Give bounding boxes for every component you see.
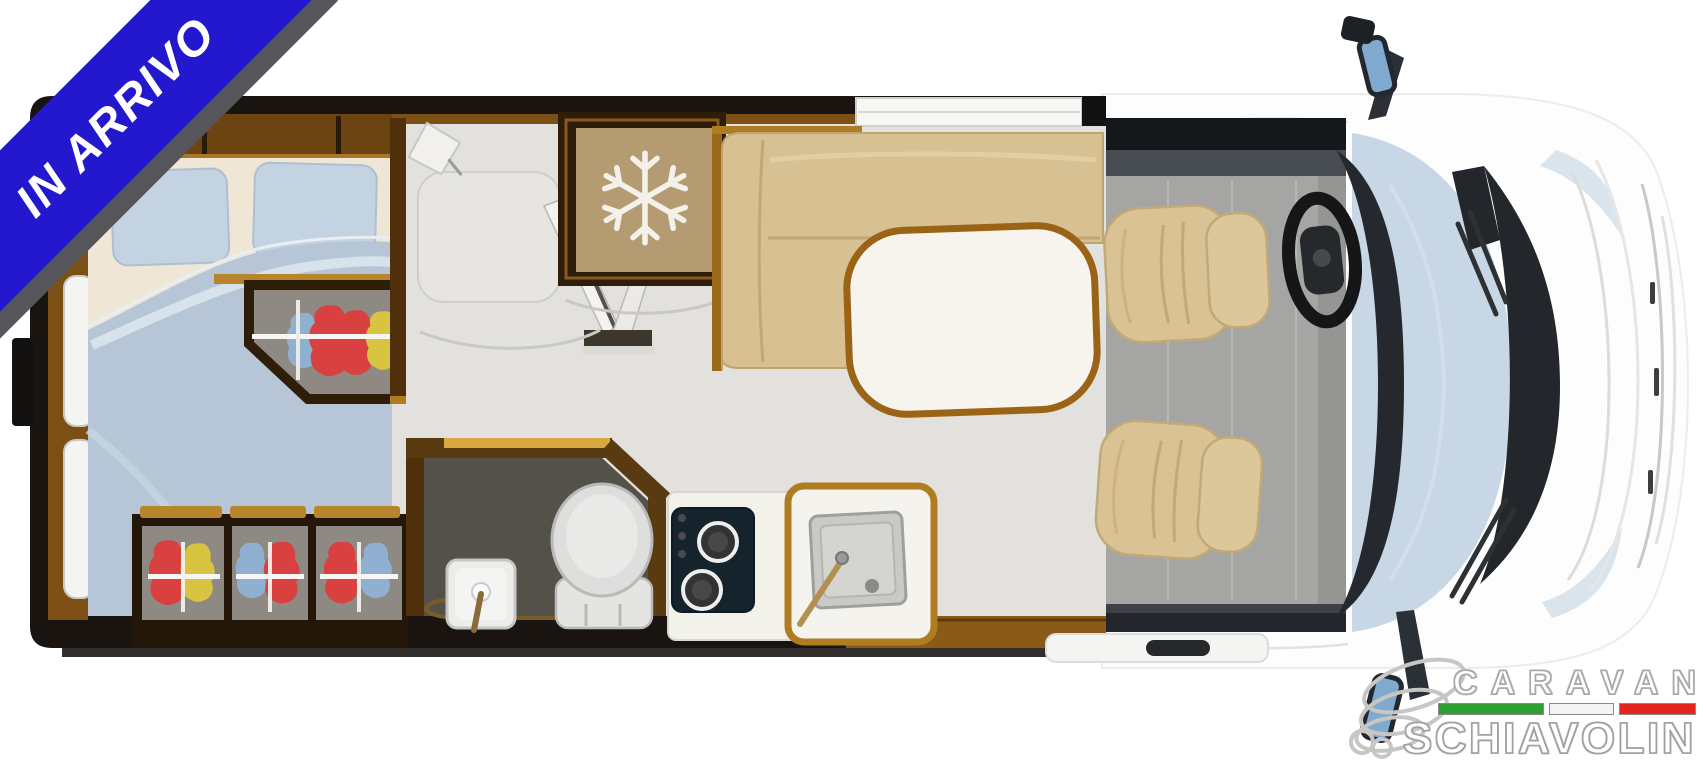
passenger-seat — [1094, 419, 1265, 564]
kitchen — [668, 486, 934, 642]
step-handle — [1146, 640, 1210, 656]
toilet — [552, 484, 652, 628]
fridge-freezer — [558, 112, 726, 286]
bathroom — [406, 438, 666, 630]
washbasin — [447, 560, 515, 630]
body-shadow — [62, 648, 1110, 657]
logo-line1: CARAVAN — [1396, 666, 1706, 700]
logo-line2: SCHIAVOLIN — [1396, 717, 1696, 761]
cab-door-window-top — [1106, 118, 1346, 150]
rear-light-tab — [12, 338, 34, 426]
clothes-rail — [252, 334, 390, 339]
dinette-table — [845, 224, 1099, 417]
driver-seat — [1103, 202, 1272, 344]
roof-marker — [1340, 15, 1376, 45]
screenshot-canvas: IN ARRIVO CARAVAN SCHIAVOLIN — [0, 0, 1706, 768]
dealer-logo: CARAVAN SCHIAVOLIN — [1396, 666, 1696, 761]
bathroom-door-gold — [444, 438, 610, 448]
bathroom-wall-left — [406, 438, 424, 616]
two-burner-stove — [672, 508, 754, 612]
partition-wall — [390, 118, 406, 404]
entry-mat — [418, 172, 560, 302]
rear-wardrobes — [132, 506, 408, 648]
motorhome-floorplan-image — [0, 0, 1706, 768]
hanging-clothes — [287, 305, 400, 376]
